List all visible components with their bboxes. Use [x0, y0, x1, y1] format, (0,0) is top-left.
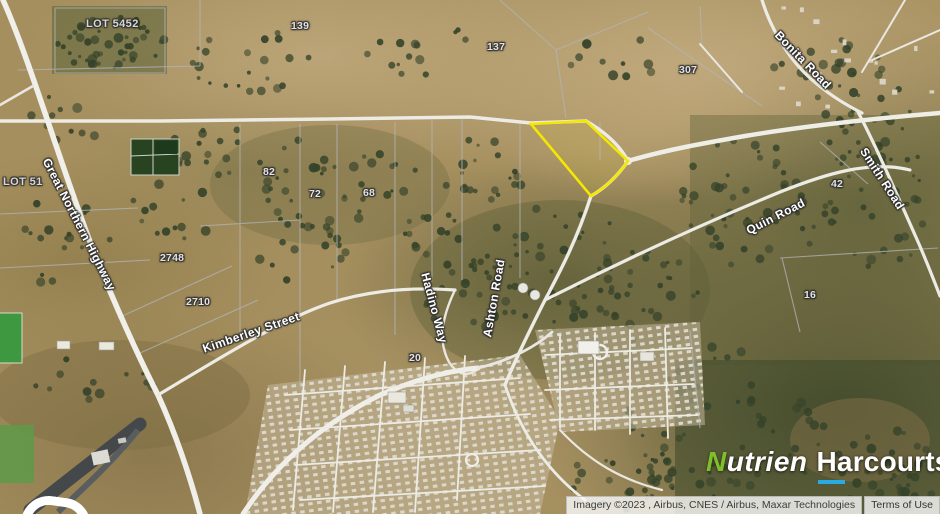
- harcourts-wordmark: Harcourts: [817, 446, 940, 478]
- pond-group: [131, 139, 179, 175]
- nutrien-harcourts-logo: Nutrien Harcourts: [706, 446, 940, 478]
- imagery-attribution: Imagery ©2023 , Airbus, CNES / Airbus, M…: [566, 496, 862, 514]
- nutrien-rest: utrien: [727, 446, 808, 477]
- terms-of-use-link[interactable]: Terms of Use: [864, 496, 940, 514]
- nutrien-wordmark: Nutrien: [706, 446, 808, 478]
- harcourts-underline: [818, 480, 845, 484]
- harcourts-text: Harcourts: [817, 446, 940, 477]
- attribution-bar: Imagery ©2023 , Airbus, CNES / Airbus, M…: [566, 496, 940, 514]
- nutrien-leaf-n: N: [706, 446, 727, 477]
- map-overlay-svg: [0, 0, 940, 514]
- satellite-map-viewport[interactable]: LOT 5452LOT 5113913730782726827482710201…: [0, 0, 940, 514]
